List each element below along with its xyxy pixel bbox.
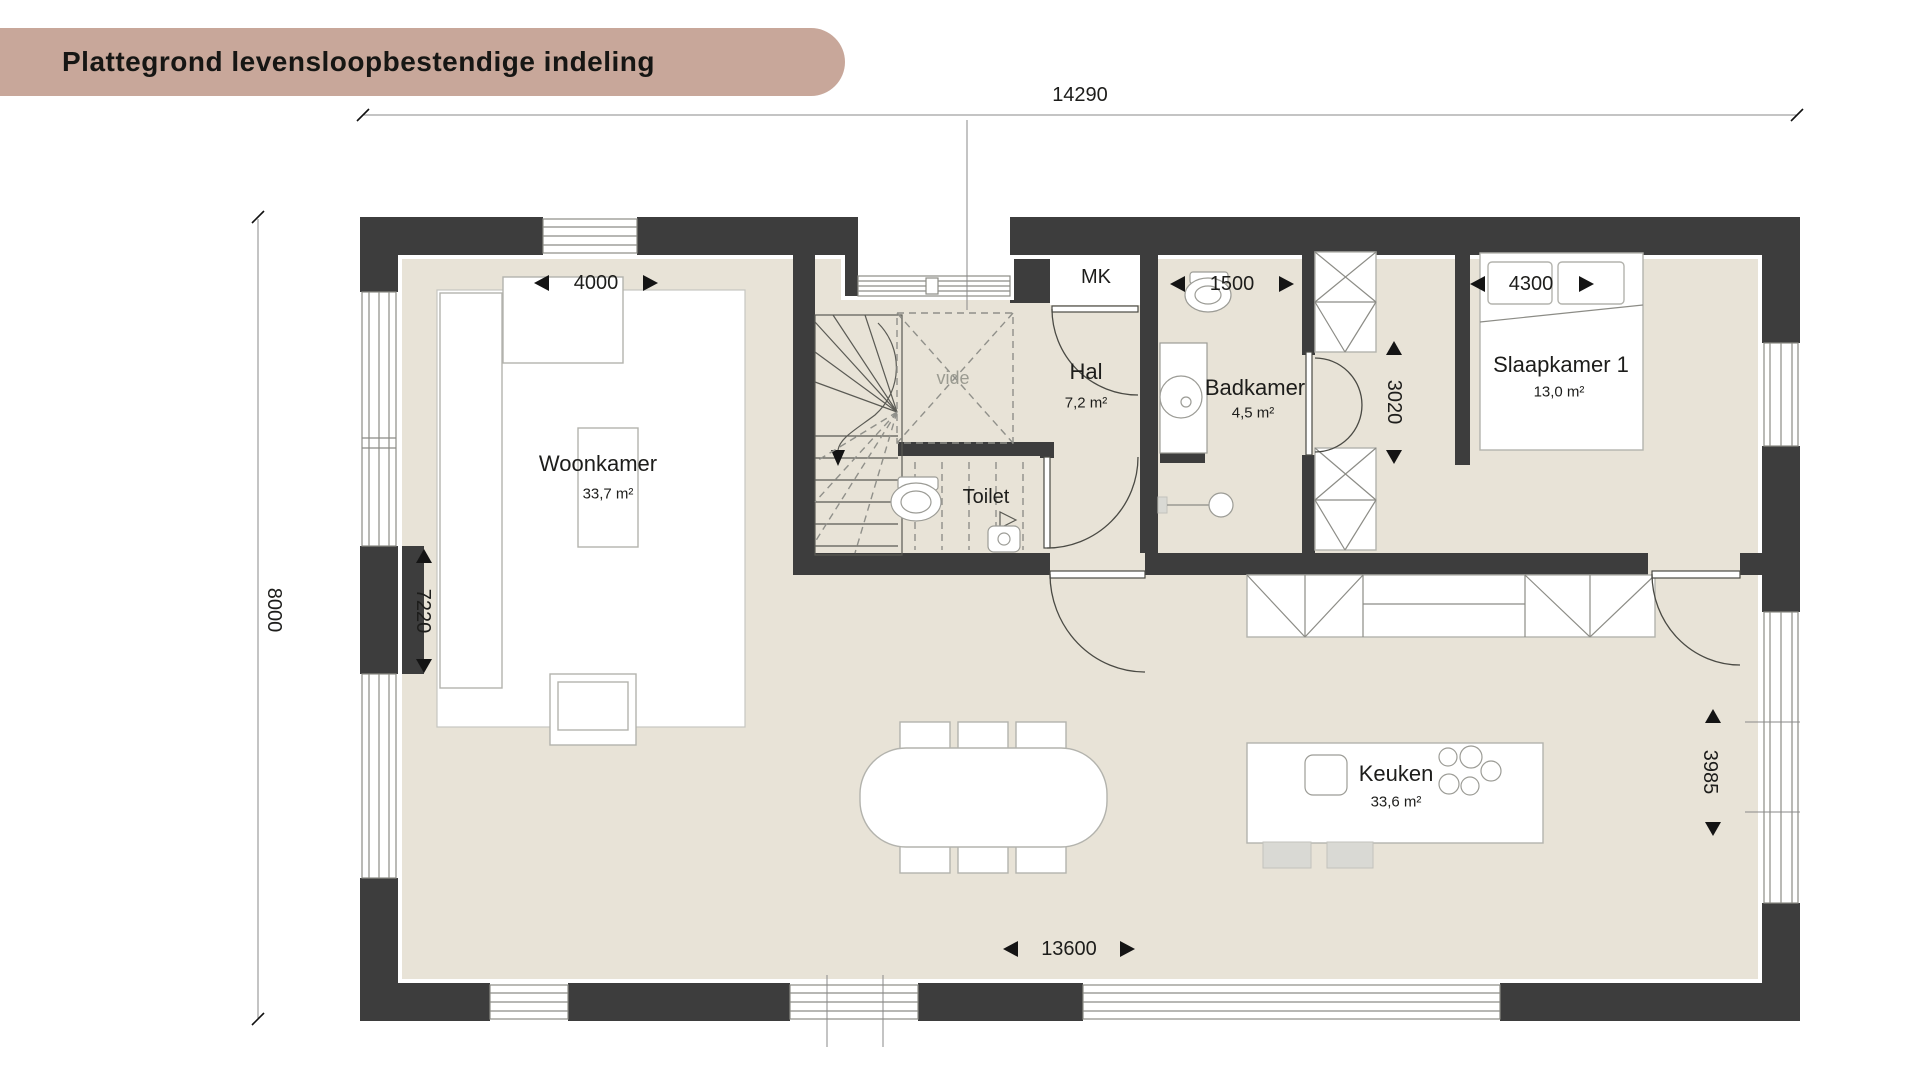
label-slaapkamer1: Slaapkamer 1 [1493,354,1629,376]
bar-stool [1327,842,1373,868]
dim-inner-width: 13600 [1041,939,1097,959]
dim-woonkamer-window: 4000 [574,273,619,293]
woonkamer-furniture [437,277,745,745]
floor-plan-page: Plattegrond levensloopbestendige indelin… [0,0,1920,1080]
floor-plan-drawing [0,0,1920,1080]
window-left-upper [362,292,396,546]
chair [900,722,950,750]
label-mk: MK [1081,267,1111,287]
dim-badkamer-width: 1500 [1210,274,1255,294]
window-woonkamer-top [543,219,637,253]
armchair [550,674,636,745]
dim-total-depth: 8000 [264,588,284,633]
window-bottom-3 [1083,985,1500,1019]
chair [900,845,950,873]
window-bottom-1 [490,985,568,1019]
wardrobe-top [1315,252,1376,352]
label-badkamer-area: 4,5 m² [1232,406,1275,421]
label-vide: vide [936,369,969,387]
window-keuken-right [1764,612,1798,903]
label-keuken-area: 33,6 m² [1371,795,1422,810]
bar-stool [1263,842,1311,868]
title-banner: Plattegrond levensloopbestendige indelin… [0,28,845,96]
dim-corridor-depth: 3020 [1384,380,1404,425]
window-bottom-2 [790,985,918,1019]
sink [1305,755,1347,795]
label-toilet: Toilet [963,487,1010,507]
label-hal-area: 7,2 m² [1065,396,1108,411]
window-slaapkamer-right [1764,343,1798,446]
label-slaapkamer1-area: 13,0 m² [1534,385,1585,400]
dim-woonkamer-depth: 7220 [413,589,433,634]
dim-keuken-window: 3985 [1700,750,1720,795]
page-title: Plattegrond levensloopbestendige indelin… [62,46,655,78]
label-badkamer: Badkamer [1205,377,1305,399]
dim-slaapkamer-width: 4300 [1509,274,1554,294]
chair [1016,845,1066,873]
chair [958,845,1008,873]
dining-table [860,748,1107,847]
shower [1160,343,1207,453]
wardrobe-bottom [1315,448,1376,550]
label-woonkamer: Woonkamer [539,453,657,475]
label-keuken: Keuken [1359,763,1434,785]
label-woonkamer-area: 33,7 m² [583,487,634,502]
chair [1016,722,1066,750]
dim-total-width: 14290 [1052,85,1108,105]
chair [958,722,1008,750]
window-entrance-recess [858,276,1010,296]
label-hal: Hal [1069,361,1102,383]
kitchen-counter [1247,575,1655,637]
sofa [440,293,502,688]
window-left-lower [362,674,396,878]
